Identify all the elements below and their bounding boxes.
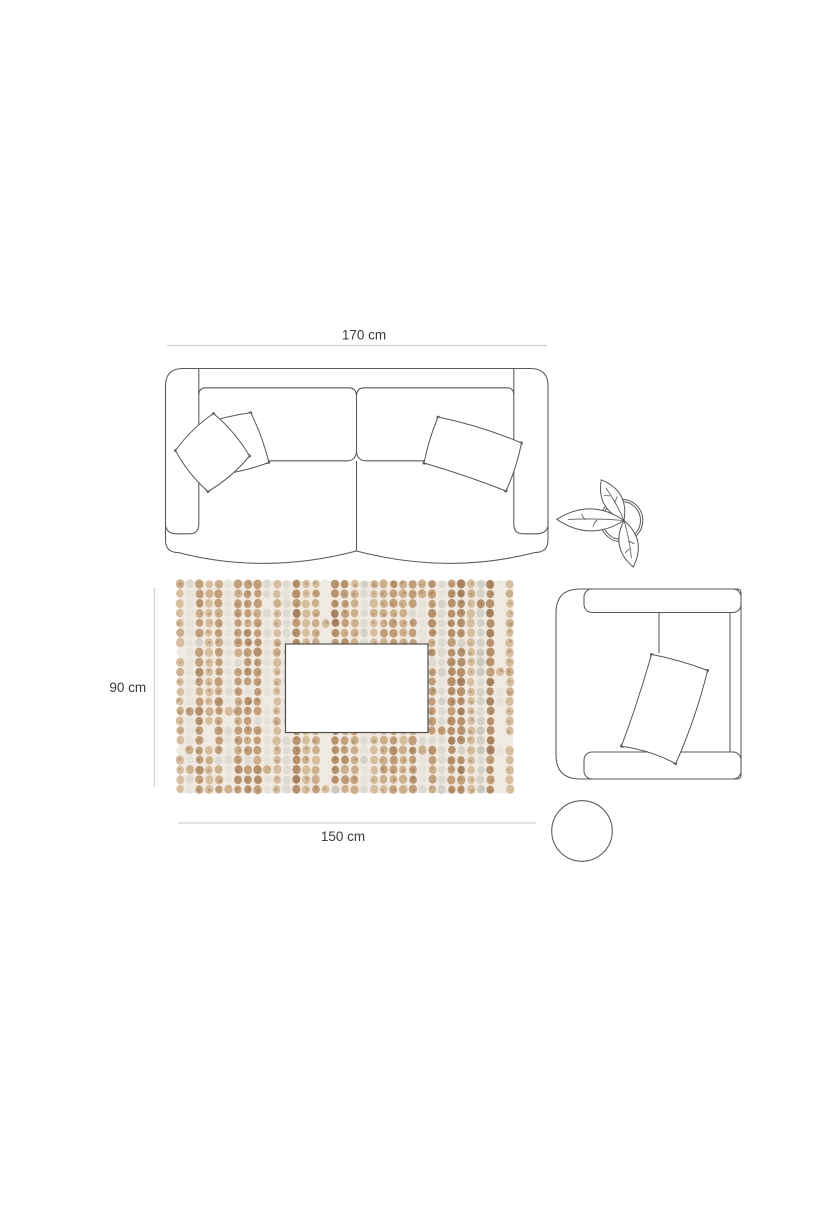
svg-text:150 cm: 150 cm xyxy=(321,829,365,844)
svg-text:90 cm: 90 cm xyxy=(109,680,146,695)
svg-text:170 cm: 170 cm xyxy=(342,328,386,343)
